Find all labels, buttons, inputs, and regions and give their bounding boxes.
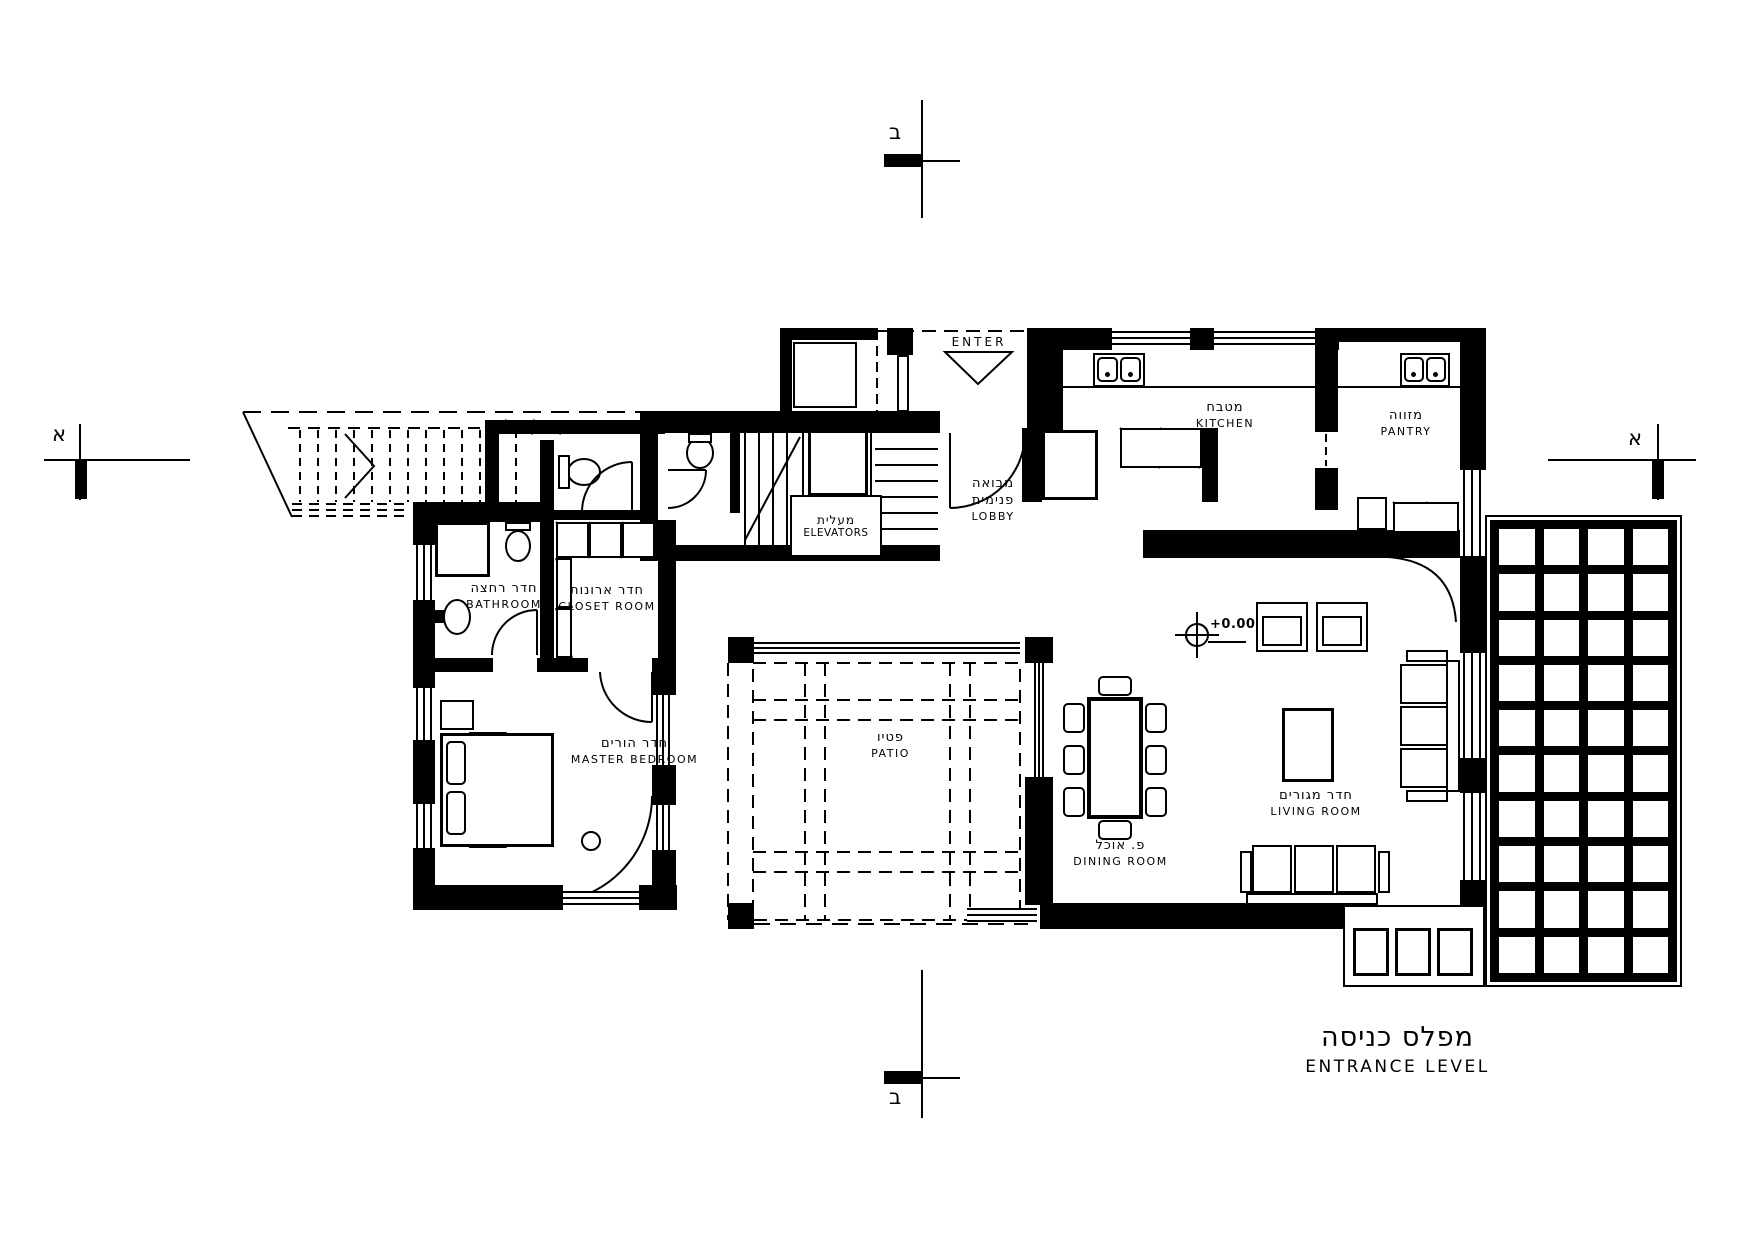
ln: [1548, 459, 1696, 461]
pergola-cell: [1588, 710, 1624, 746]
pergola-cell: [1588, 801, 1624, 837]
box: [1120, 357, 1141, 382]
dining-chair: [1145, 745, 1167, 775]
wall-segment: [413, 502, 435, 545]
section-letter-right: א: [1628, 426, 1642, 450]
wall-segment: [884, 1071, 922, 1084]
room-label-living: חדר מגוריםLIVING ROOM: [1256, 788, 1376, 819]
pergola-cell: [1633, 710, 1669, 746]
en: BATHROOM: [447, 598, 561, 612]
nightstand: [440, 700, 474, 730]
dining-table: [1087, 697, 1143, 819]
wc1-toilet-bowl: [568, 459, 600, 485]
room-label-elevators: מעליתELEVATORS: [790, 495, 882, 557]
room-label-master-bedroom: חדר הוריםMASTER BEDROOM: [552, 736, 717, 767]
dining-chair: [1145, 703, 1167, 733]
bath-toilet-tank: [505, 522, 531, 531]
wall-segment: [1025, 777, 1053, 905]
he: מבואה: [942, 476, 1044, 493]
path: [668, 470, 706, 508]
patio-grid: [728, 663, 1028, 924]
he: מזווה: [1366, 408, 1446, 425]
box: [1378, 851, 1390, 893]
box: [1252, 845, 1292, 893]
box: [1262, 616, 1302, 646]
section-letter-left: א: [52, 422, 66, 446]
path: [1197, 624, 1208, 635]
section-letter-bottom: ב: [889, 1085, 901, 1109]
dining-chair: [1063, 703, 1085, 733]
en: PANTRY: [1366, 425, 1446, 439]
wall-segment: [413, 600, 435, 658]
pergola-cell: [1633, 574, 1669, 610]
bedroom-window: [416, 688, 432, 740]
pergola-cell: [1544, 937, 1580, 973]
en: LIVING ROOM: [1256, 805, 1376, 819]
wall-segment: [652, 665, 676, 695]
he: חדר רחצה: [447, 581, 561, 598]
he: מטבח: [1160, 400, 1290, 417]
pergola-cell: [1588, 937, 1624, 973]
wall-segment: [1460, 880, 1486, 905]
wall-segment: [75, 461, 87, 499]
box: [793, 342, 857, 408]
pergola-cell: [1633, 937, 1669, 973]
pergola-grid: [1490, 520, 1677, 982]
wall-segment: [1315, 350, 1338, 432]
deck-planter: [1395, 928, 1431, 976]
wall-segment: [1190, 328, 1214, 350]
closet-cabinet: [622, 522, 655, 558]
pantry-counter: [1393, 502, 1459, 533]
drawing-title: מפלס כניסה ENTRANCE LEVEL: [1270, 1022, 1525, 1077]
pergola-cell: [1588, 620, 1624, 656]
pergola-cell: [1499, 891, 1535, 927]
path: [292, 504, 410, 516]
pergola-cell: [1544, 620, 1580, 656]
pergola-cell: [1544, 846, 1580, 882]
entry-door-leaf: [897, 355, 909, 412]
ln: [44, 459, 190, 461]
wall-segment: [887, 328, 913, 355]
en: CLOSET ROOM: [554, 600, 660, 614]
winH: [967, 908, 1037, 922]
wall-segment: [485, 420, 499, 502]
pergola-cell: [1544, 710, 1580, 746]
pergola-cell: [1499, 529, 1535, 565]
box: [1294, 845, 1334, 893]
wall-segment: [1338, 328, 1462, 342]
dining-chair: [1063, 787, 1085, 817]
room-label-kitchen: מטבחKITCHEN: [1160, 400, 1290, 431]
enter-label: ENTER: [947, 335, 1011, 351]
winV: [656, 805, 670, 850]
pillow: [446, 741, 466, 785]
box: [1406, 790, 1448, 802]
wall-segment: [728, 637, 754, 663]
section-letter-top: ב: [889, 120, 901, 144]
path: [600, 672, 652, 722]
en: MASTER BEDROOM: [552, 753, 717, 767]
en: DINING ROOM: [1063, 855, 1178, 869]
wall-segment: [640, 411, 940, 433]
pergola-cell: [1544, 529, 1580, 565]
box: [1336, 845, 1376, 893]
room-label-closet: חדר ארונותCLOSET ROOM: [554, 583, 660, 614]
box: [1240, 851, 1252, 893]
path: [1388, 557, 1456, 622]
wall-segment: [413, 658, 435, 688]
box: [1404, 357, 1424, 382]
wall-segment: [485, 420, 665, 434]
bath-sink-tap: [435, 610, 444, 623]
en: ELEVATORS: [803, 527, 868, 539]
wall-segment: [780, 328, 792, 412]
pergola-cell: [1499, 846, 1535, 882]
room-label-bathroom: חדר רחצהBATHROOM: [447, 581, 561, 612]
wall-segment: [658, 520, 676, 665]
dining-chair: [1145, 787, 1167, 817]
wall-segment: [1460, 758, 1486, 793]
he: חדר מגורים: [1256, 788, 1376, 805]
he: חדר ארונות: [554, 583, 660, 600]
he: חדר הורים: [552, 736, 717, 753]
pergola-cell: [1633, 620, 1669, 656]
kitchen-window: [1112, 331, 1190, 345]
pergola-cell: [1588, 574, 1624, 610]
pergola-cell: [1633, 891, 1669, 927]
pergola-cell: [1544, 574, 1580, 610]
deck-planter: [1437, 928, 1473, 976]
bath-toilet-bowl: [506, 531, 530, 561]
he: פנימית: [942, 493, 1044, 510]
he: פטיו: [843, 730, 938, 747]
dining-chair: [1063, 745, 1085, 775]
closet-cabinet: [589, 522, 622, 558]
wall-segment: [1040, 903, 1345, 929]
path: [753, 700, 1020, 872]
wall-segment: [1143, 530, 1460, 558]
level-marker-text: +0.00: [1210, 617, 1255, 632]
sofa-right: [1446, 660, 1460, 792]
wc2-toilet-tank: [688, 433, 712, 443]
pergola-cell: [1633, 755, 1669, 791]
he: מעלית: [817, 513, 855, 527]
wall-segment: [728, 903, 754, 929]
dining-chair: [1098, 820, 1132, 840]
pergola-cell: [1588, 529, 1624, 565]
pergola-cell: [1544, 801, 1580, 837]
living-window: [1463, 653, 1481, 758]
room-label-pantry: מזווהPANTRY: [1366, 408, 1446, 439]
dining-chair: [1098, 676, 1132, 696]
winV: [416, 545, 432, 600]
wall-segment: [1315, 328, 1339, 350]
elevator-shaft: [808, 430, 868, 496]
wall-segment: [1062, 328, 1112, 350]
wall-segment: [1315, 468, 1338, 510]
pergola-cell: [1588, 846, 1624, 882]
pergola-cell: [1544, 665, 1580, 701]
wc1-toilet-tank: [558, 455, 570, 489]
box: [1426, 357, 1446, 382]
title-english: ENTRANCE LEVEL: [1270, 1057, 1525, 1077]
box: [1400, 748, 1448, 788]
en: KITCHEN: [1160, 417, 1290, 431]
kitchen-counter: [1120, 428, 1202, 468]
pantry-appliance: [1357, 497, 1387, 530]
pergola-cell: [1633, 665, 1669, 701]
pergola-cell: [1499, 665, 1535, 701]
wall-segment: [540, 440, 554, 660]
path: [492, 610, 537, 655]
en: PATIO: [843, 747, 938, 761]
he: פ. אוכל: [1063, 838, 1178, 855]
wall-segment: [1652, 461, 1664, 499]
bedroom-window: [416, 804, 432, 848]
wall-segment: [1433, 372, 1438, 377]
room-label-lobby: מבואהפנימית LOBBY: [942, 476, 1044, 524]
pillow: [446, 791, 466, 835]
box: [1406, 650, 1448, 662]
path: [300, 430, 516, 502]
sofa-bottom: [1246, 893, 1378, 905]
wall-segment: [1460, 328, 1486, 470]
living-window: [1463, 793, 1481, 880]
pergola-cell: [1633, 846, 1669, 882]
wall-segment: [543, 510, 643, 520]
room-label-patio: פטיוPATIO: [843, 730, 938, 761]
pergola-cell: [1633, 529, 1669, 565]
path: [875, 449, 938, 529]
pergola-cell: [1499, 937, 1535, 973]
path: [805, 663, 970, 920]
pergola-cell: [1499, 620, 1535, 656]
wall-segment: [1128, 372, 1133, 377]
patio-window: [1034, 663, 1044, 777]
box: [1322, 616, 1362, 646]
pergola-cell: [1588, 665, 1624, 701]
wall-segment: [1460, 556, 1486, 653]
pergola-cell: [1544, 891, 1580, 927]
bedroom-window: [563, 891, 639, 905]
bedroom-stool: [582, 832, 600, 850]
pergola-cell: [1588, 891, 1624, 927]
wall-segment: [652, 850, 676, 910]
room-label-dining: פ. אוכלDINING ROOM: [1063, 838, 1178, 869]
wall-segment: [1025, 637, 1053, 663]
title-hebrew: מפלס כניסה: [1270, 1022, 1525, 1053]
closet-cabinet: [556, 608, 572, 658]
wall-segment: [537, 658, 588, 672]
wall-segment: [884, 154, 922, 167]
patio-window: [754, 642, 1020, 654]
pergola-cell: [1499, 574, 1535, 610]
wall-segment: [413, 885, 563, 910]
line: [243, 412, 292, 517]
wall-segment: [1202, 428, 1218, 502]
shower: [435, 522, 490, 577]
wall-segment: [780, 328, 878, 340]
pergola-cell: [1499, 755, 1535, 791]
path: [1186, 635, 1197, 646]
pergola: [1485, 515, 1682, 987]
wall-segment: [730, 420, 740, 513]
path: [582, 462, 632, 512]
deck-planter: [1353, 928, 1389, 976]
pergola-cell: [1499, 710, 1535, 746]
kitchen-window: [1214, 331, 1315, 345]
wall-segment: [652, 765, 676, 805]
box3: [1042, 430, 1098, 500]
en: LOBBY: [942, 510, 1044, 524]
box: [1097, 357, 1118, 382]
box: [1400, 706, 1448, 746]
wall-segment: [1411, 372, 1416, 377]
pergola-cell: [1544, 755, 1580, 791]
pantry-window: [1463, 470, 1481, 556]
pergola-cell: [1588, 755, 1624, 791]
path: [753, 663, 1020, 920]
box: [1400, 664, 1448, 704]
closet-cabinet: [556, 522, 589, 558]
pergola-cell: [1499, 801, 1535, 837]
floor-plan-canvas: ב ב א א: [0, 0, 1754, 1240]
section-marker-bottom-line: [921, 970, 923, 1118]
enter-arrow-icon: [945, 352, 1012, 384]
stair-direction-arrow: [345, 434, 374, 498]
coffee-table: [1282, 708, 1334, 782]
wall-segment: [1105, 372, 1110, 377]
wall-segment: [413, 740, 435, 804]
pergola-cell: [1633, 801, 1669, 837]
